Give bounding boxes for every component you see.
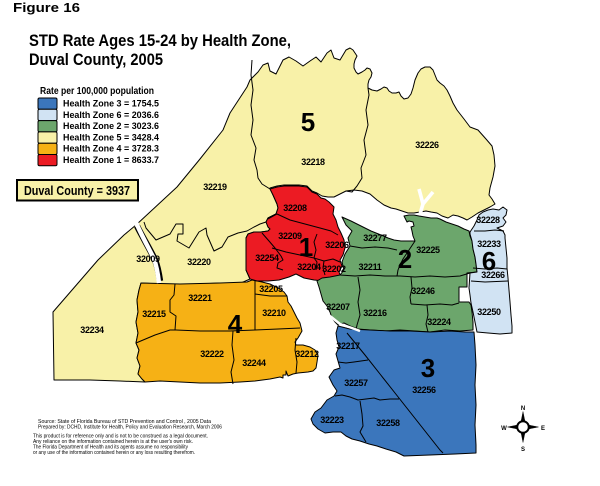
svg-text:Health Zone 4 = 3728.3: Health Zone 4 = 3728.3 (63, 144, 159, 155)
svg-text:32244: 32244 (242, 358, 266, 368)
svg-text:S: S (521, 447, 525, 453)
svg-text:32234: 32234 (80, 325, 104, 335)
svg-text:32256: 32256 (412, 385, 436, 395)
svg-text:32211: 32211 (358, 262, 381, 272)
svg-text:32221: 32221 (188, 293, 212, 303)
svg-text:32226: 32226 (415, 140, 439, 150)
svg-text:32206: 32206 (325, 240, 349, 250)
svg-text:32254: 32254 (255, 253, 279, 263)
svg-text:32277: 32277 (363, 233, 387, 243)
svg-text:W: W (501, 426, 507, 432)
svg-text:E: E (541, 426, 545, 432)
svg-text:4: 4 (228, 309, 243, 339)
svg-text:32009: 32009 (136, 254, 160, 264)
svg-text:32246: 32246 (411, 286, 435, 296)
svg-text:32210: 32210 (262, 308, 286, 318)
svg-text:N: N (521, 406, 525, 412)
svg-text:32218: 32218 (301, 157, 325, 167)
svg-text:32208: 32208 (283, 203, 307, 213)
svg-text:32219: 32219 (203, 182, 227, 192)
svg-text:32202: 32202 (322, 264, 346, 274)
svg-text:32258: 32258 (376, 418, 400, 428)
svg-text:32216: 32216 (363, 308, 387, 318)
svg-text:32224: 32224 (427, 317, 451, 327)
svg-text:Duval County = 3937: Duval County = 3937 (24, 183, 130, 198)
svg-text:32223: 32223 (320, 415, 344, 425)
svg-text:32212: 32212 (295, 349, 319, 359)
svg-text:Health Zone 1 = 8633.7: Health Zone 1 = 8633.7 (63, 155, 159, 166)
svg-text:Health Zone 5 = 3428.4: Health Zone 5 = 3428.4 (63, 132, 160, 143)
svg-text:Duval County, 2005: Duval County, 2005 (29, 51, 163, 69)
svg-text:Figure 16: Figure 16 (13, 1, 80, 15)
svg-text:5: 5 (301, 107, 315, 137)
svg-text:32207: 32207 (326, 302, 350, 312)
svg-text:or any use of the information: or any use of the information contained … (33, 450, 195, 456)
svg-text:32225: 32225 (416, 245, 440, 255)
svg-text:32250: 32250 (477, 307, 501, 317)
svg-text:1: 1 (299, 232, 313, 262)
svg-text:32205: 32205 (259, 284, 283, 294)
svg-text:Prepared by: DCHD, Institute: Prepared by: DCHD, Institute for Health,… (38, 425, 222, 431)
svg-text:Health Zone 3 = 1754.5: Health Zone 3 = 1754.5 (63, 99, 160, 110)
svg-text:Health Zone 2 = 3023.6: Health Zone 2 = 3023.6 (63, 121, 159, 132)
svg-text:3: 3 (421, 353, 435, 383)
svg-text:32220: 32220 (187, 257, 211, 267)
svg-text:32204: 32204 (297, 262, 321, 272)
svg-text:32215: 32215 (142, 309, 166, 319)
svg-text:STD Rate Ages 15-24 by Health: STD Rate Ages 15-24 by Health Zone, (29, 32, 291, 50)
svg-text:Rate per 100,000 population: Rate per 100,000 population (40, 85, 154, 97)
svg-text:32217: 32217 (336, 341, 360, 351)
svg-text:32228: 32228 (476, 215, 500, 225)
svg-text:32222: 32222 (200, 349, 224, 359)
svg-text:Health Zone 6 = 2036.6: Health Zone 6 = 2036.6 (63, 110, 159, 121)
svg-text:2: 2 (398, 244, 412, 274)
svg-text:32257: 32257 (344, 378, 368, 388)
svg-text:32266: 32266 (481, 270, 505, 280)
